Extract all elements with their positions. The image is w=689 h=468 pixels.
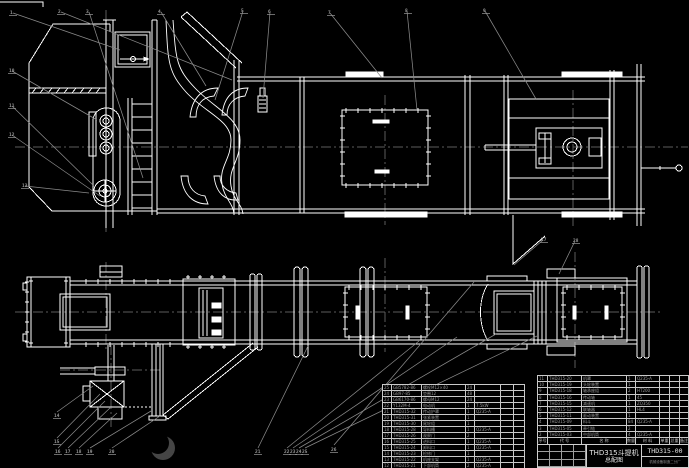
bom-cell: 12 — [383, 463, 392, 468]
leader-line — [12, 106, 95, 187]
callout-number: 21 — [255, 449, 261, 455]
drawing-number: THD315-00 — [642, 445, 688, 457]
middle-panel — [343, 285, 430, 340]
watermark-logo — [147, 432, 175, 460]
inlet-box — [23, 266, 122, 347]
bom-cell — [514, 463, 525, 468]
bom-cell: THD315-21 — [392, 463, 422, 468]
motor-gearbox — [60, 345, 125, 419]
leader-line — [514, 240, 543, 265]
callout-number: 15 — [54, 439, 60, 445]
leader-line — [485, 11, 536, 99]
transition-section — [481, 276, 547, 349]
sheet-frame-corner — [0, 2, 43, 7]
callout-number: 13 — [22, 183, 28, 189]
callout-number: 28 — [573, 238, 579, 244]
leader-line — [61, 12, 232, 80]
bom-cell: 下部机筒 — [422, 463, 466, 468]
callout-number: 26 — [331, 447, 337, 453]
bom-cell — [501, 463, 514, 468]
drawing-title: THD315斗提机 总配图 — [586, 445, 642, 467]
bom-row: 12THD315-21下部机筒2Q235-A — [383, 463, 525, 468]
callout-number: 7 — [328, 10, 331, 16]
callout-number: 20 — [109, 449, 115, 455]
callout-number: 6 — [268, 9, 271, 15]
callout-number: 19 — [87, 449, 93, 455]
bom-cell: Q235-A — [475, 463, 501, 468]
bom-table-left: 25GB5782-86螺栓M12×402424GB97-85垫圈124823GB… — [382, 384, 525, 468]
callout-number: 4 — [158, 9, 161, 15]
callout-number: 8 — [405, 8, 408, 14]
boot-leg — [125, 343, 258, 420]
leader-line — [25, 186, 89, 193]
callout-number: 3 — [86, 9, 89, 15]
drawing-name: 总配图 — [605, 457, 623, 464]
callout-number: 27 — [541, 237, 547, 243]
end-bolt — [641, 165, 682, 171]
leader-line — [13, 13, 120, 50]
signature-grid — [538, 445, 586, 467]
leader-line — [68, 407, 111, 448]
leader-line — [330, 13, 382, 78]
leader-line — [407, 11, 417, 110]
callout-number: 18 — [76, 449, 82, 455]
discharge-chute — [166, 12, 243, 214]
callout-number: 25 — [302, 449, 308, 455]
callout-number: 5 — [241, 8, 244, 14]
callout-number: 1 — [10, 10, 13, 16]
bom-table-right: 11THD315-20机罩1Q235-A10THD315-19头轮装置19THD… — [537, 375, 689, 445]
callout-number: 12 — [9, 132, 15, 138]
bom-cell: 2 — [466, 463, 475, 468]
company-name: 机械设备制造二分厂 — [642, 457, 688, 467]
elevation-view — [29, 12, 682, 264]
leader-line — [57, 394, 100, 438]
title-block: THD315斗提机 总配图 THD315-00 机械设备制造二分厂 — [537, 444, 689, 468]
leader-line — [58, 401, 105, 448]
leader-line — [89, 12, 143, 178]
callout-number: 24 — [296, 449, 302, 455]
leader-line — [263, 12, 270, 98]
leader-line — [258, 346, 308, 448]
product-name: THD315斗提机 — [589, 449, 638, 457]
casing-duct — [157, 64, 645, 226]
leader-line — [12, 71, 97, 120]
callout-number: 9 — [483, 8, 486, 14]
callout-number: 2 — [58, 9, 61, 15]
callout-number: 23 — [290, 449, 296, 455]
leader-line — [57, 386, 93, 412]
callout-number: 14 — [54, 413, 60, 419]
callout-number: 17 — [65, 449, 71, 455]
callout-number: 16 — [55, 449, 61, 455]
inspection-box — [115, 32, 150, 67]
callout-number: 11 — [9, 103, 15, 109]
access-panel — [340, 108, 431, 188]
cad-drawing-canvas: 1234567891011121314151617181920212223242… — [0, 0, 689, 468]
tensioner-bolt — [258, 88, 267, 112]
callout-number: 10 — [9, 68, 15, 74]
callout-number: 22 — [284, 449, 290, 455]
